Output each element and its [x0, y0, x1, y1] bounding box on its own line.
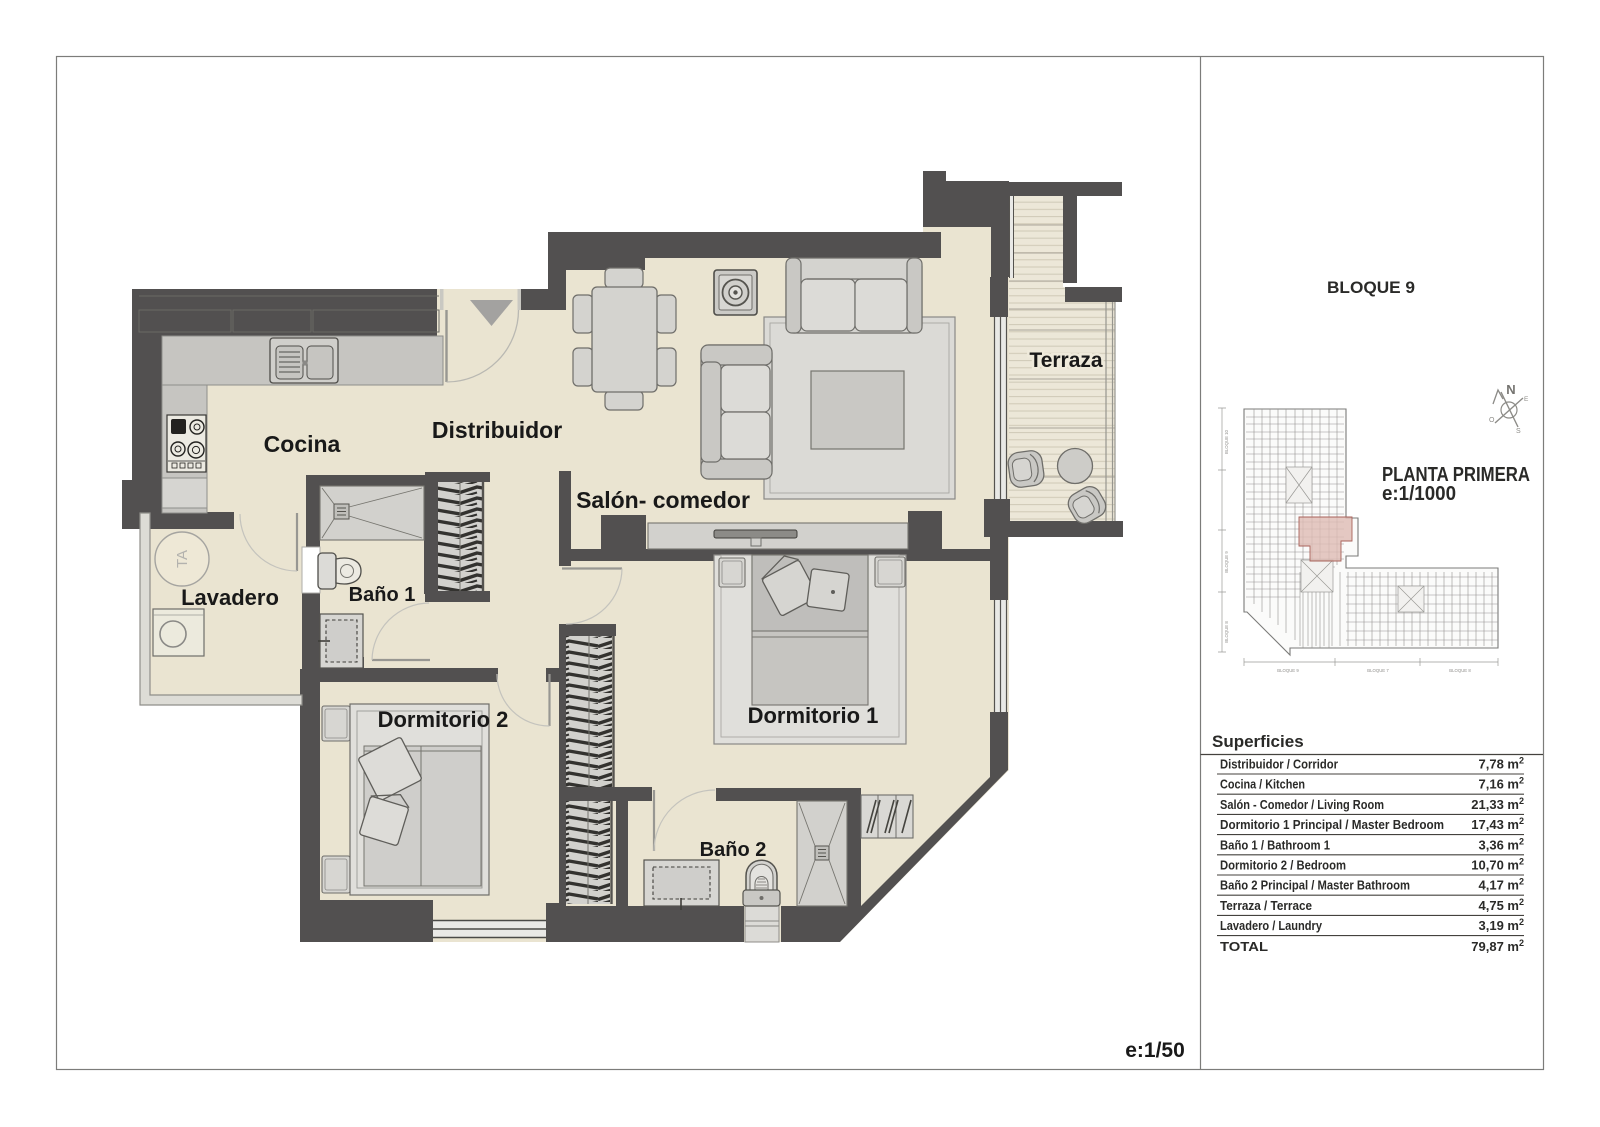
svg-text:Lavadero / Laundry: Lavadero / Laundry: [1220, 918, 1323, 933]
svg-text:4,17 m2: 4,17 m2: [1479, 877, 1525, 893]
svg-text:79,87 m2: 79,87 m2: [1471, 938, 1524, 954]
svg-text:Dormitorio 2: Dormitorio 2: [378, 707, 509, 732]
svg-text:Baño 1: Baño 1: [349, 584, 416, 606]
svg-text:4,75 m2: 4,75 m2: [1479, 897, 1525, 913]
svg-text:BLOQUE 9: BLOQUE 9: [1224, 551, 1229, 573]
svg-text:e:1/1000: e:1/1000: [1382, 483, 1456, 505]
svg-text:BLOQUE 8: BLOQUE 8: [1449, 668, 1471, 673]
svg-text:E: E: [1524, 396, 1529, 403]
svg-text:3,36 m2: 3,36 m2: [1479, 836, 1525, 852]
svg-text:Terraza / Terrace: Terraza / Terrace: [1220, 898, 1312, 913]
svg-text:Cocina / Kitchen: Cocina / Kitchen: [1220, 777, 1305, 792]
svg-text:BLOQUE 9: BLOQUE 9: [1327, 278, 1415, 297]
svg-text:TOTAL: TOTAL: [1220, 939, 1268, 954]
svg-text:Dormitorio 1 Principal / Maste: Dormitorio 1 Principal / Master Bedroom: [1220, 817, 1444, 832]
svg-text:Baño 2 Principal / Master Bath: Baño 2 Principal / Master Bathroom: [1220, 878, 1410, 893]
svg-text:Cocina: Cocina: [264, 431, 341, 457]
svg-text:N: N: [1506, 382, 1515, 397]
svg-text:21,33 m2: 21,33 m2: [1471, 796, 1524, 812]
svg-text:S: S: [1516, 428, 1521, 435]
svg-text:BLOQUE 9: BLOQUE 9: [1277, 668, 1299, 673]
svg-text:Salón- comedor: Salón- comedor: [576, 487, 750, 513]
svg-text:BLOQUE 10: BLOQUE 10: [1224, 429, 1229, 453]
svg-text:Dormitorio 1: Dormitorio 1: [748, 703, 879, 728]
svg-text:Distribuidor / Corridor: Distribuidor / Corridor: [1220, 757, 1338, 772]
svg-text:O: O: [1489, 417, 1495, 424]
svg-text:3,19 m2: 3,19 m2: [1479, 917, 1525, 933]
svg-text:7,78 m2: 7,78 m2: [1479, 756, 1525, 772]
svg-text:Dormitorio 2 / Bedroom: Dormitorio 2 / Bedroom: [1220, 858, 1346, 873]
svg-text:10,70 m2: 10,70 m2: [1471, 857, 1524, 873]
svg-text:Baño 2: Baño 2: [700, 839, 767, 861]
svg-text:17,43 m2: 17,43 m2: [1471, 816, 1524, 832]
svg-text:e:1/50: e:1/50: [1125, 1039, 1185, 1062]
svg-text:BLOQUE 7: BLOQUE 7: [1367, 668, 1389, 673]
svg-text:Superficies: Superficies: [1212, 732, 1304, 751]
svg-text:Lavadero: Lavadero: [181, 585, 279, 610]
svg-text:Baño 1 / Bathroom 1: Baño 1 / Bathroom 1: [1220, 837, 1330, 852]
svg-text:Terraza: Terraza: [1029, 349, 1102, 372]
svg-text:Distribuidor: Distribuidor: [432, 417, 562, 443]
svg-text:7,16 m2: 7,16 m2: [1479, 776, 1525, 792]
svg-text:TA: TA: [174, 550, 191, 568]
svg-text:Salón - Comedor / Living Room: Salón - Comedor / Living Room: [1220, 797, 1384, 812]
svg-text:BLOQUE 8: BLOQUE 8: [1224, 621, 1229, 643]
